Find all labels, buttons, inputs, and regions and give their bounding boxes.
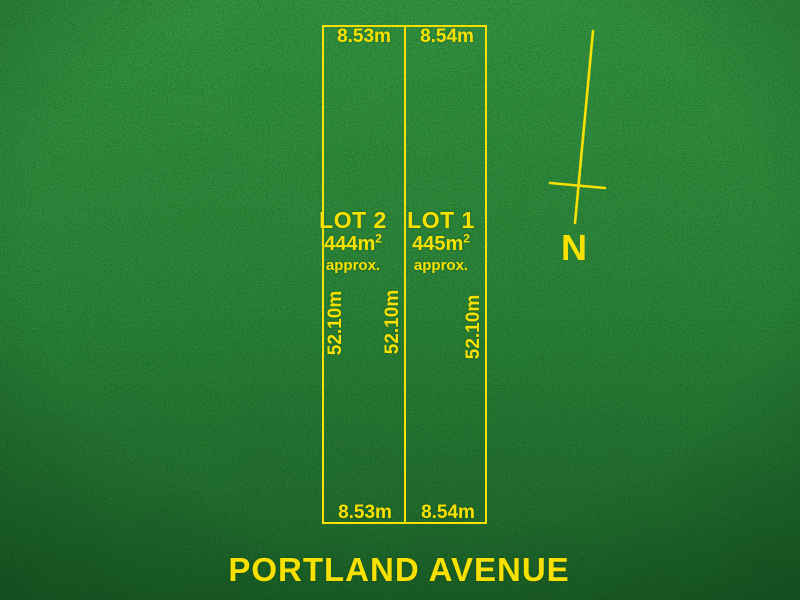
lot1-area-value: 445m [412,233,463,255]
subdivision-site-photo: 8.53m 8.54m 8.53m 8.54m 52.10m 52.10m 52… [0,0,800,600]
lot1-info: LOT 1 445m2 approx. [407,208,475,276]
lot2-width-bottom-label: 8.53m [338,502,392,524]
shared-boundary-depth-label: 52.10m [382,290,404,354]
north-arrow: N [540,20,660,270]
lot1-depth-label: 52.10m [463,295,485,359]
subdivision-overlay: 8.53m 8.54m 8.53m 8.54m 52.10m 52.10m 52… [0,0,800,600]
lot2-width-top-label: 8.53m [337,26,391,48]
lot1-name: LOT 1 [407,208,475,233]
lot2-area-value: 444m [324,233,375,255]
lot2-area: 444m2 [319,233,387,256]
lot1-area-qualifier: approx. [407,256,475,276]
north-arrow-line [575,31,593,223]
lot-boundary-line [404,25,406,524]
lot1-area: 445m2 [407,233,475,256]
lot2-area-exponent: 2 [375,231,382,245]
lot2-depth-label: 52.10m [325,291,347,355]
lot2-name: LOT 2 [319,208,387,233]
lot1-width-top-label: 8.54m [420,26,474,48]
lot2-info: LOT 2 444m2 approx. [319,208,387,276]
north-label: N [561,227,587,268]
lot1-area-exponent: 2 [463,231,470,245]
street-label: PORTLAND AVENUE [228,551,569,589]
lot2-area-qualifier: approx. [319,256,387,276]
lot1-width-bottom-label: 8.54m [421,502,475,524]
